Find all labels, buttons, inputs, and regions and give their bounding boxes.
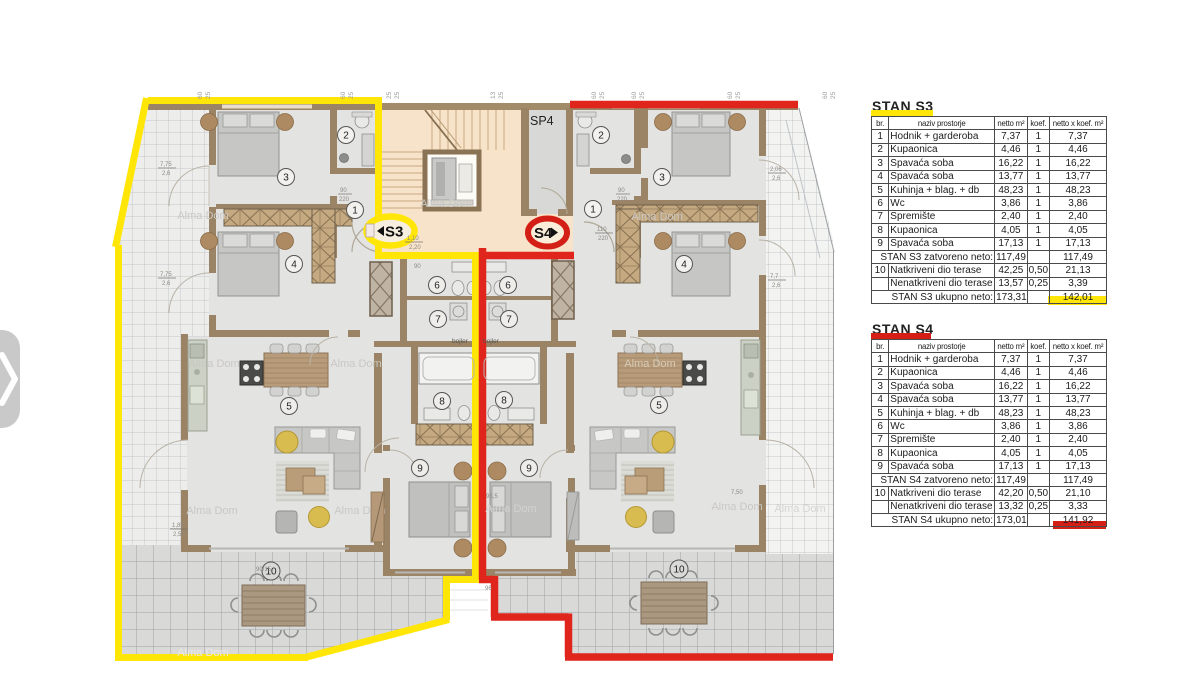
svg-text:SP4: SP4 — [530, 114, 554, 128]
svg-text:25: 25 — [348, 91, 355, 99]
svg-text:Alma Dom: Alma Dom — [177, 647, 228, 659]
svg-text:25: 25 — [735, 91, 742, 99]
svg-text:Alma Dom: Alma Dom — [485, 503, 536, 515]
svg-text:Alma Dom: Alma Dom — [774, 503, 825, 515]
svg-text:2: 2 — [598, 131, 604, 142]
svg-text:Alma Dom: Alma Dom — [330, 358, 381, 370]
svg-text:7: 7 — [435, 315, 441, 326]
svg-text:25: 25 — [394, 91, 401, 99]
svg-text:220: 220 — [339, 197, 350, 203]
svg-text:9: 9 — [526, 464, 532, 475]
svg-text:1: 1 — [590, 205, 596, 216]
svg-text:3: 3 — [659, 173, 665, 184]
svg-text:10: 10 — [673, 565, 685, 576]
svg-text:S3: S3 — [385, 224, 403, 241]
svg-text:9: 9 — [417, 464, 423, 475]
svg-text:220: 220 — [617, 197, 628, 203]
svg-text:25: 25 — [830, 91, 837, 99]
svg-text:4: 4 — [681, 260, 687, 271]
svg-text:Alma Dom: Alma Dom — [186, 505, 237, 517]
svg-text:Alma Dom: Alma Dom — [624, 358, 675, 370]
svg-text:7,75: 7,75 — [160, 162, 172, 168]
svg-text:5: 5 — [656, 401, 662, 412]
svg-text:2,50: 2,50 — [173, 532, 185, 538]
svg-text:25: 25 — [639, 91, 646, 99]
svg-text:2: 2 — [343, 131, 349, 142]
svg-text:60: 60 — [340, 91, 347, 99]
svg-text:S4: S4 — [534, 225, 553, 242]
svg-text:25: 25 — [599, 91, 606, 99]
svg-text:60: 60 — [631, 91, 638, 99]
svg-text:60: 60 — [197, 91, 204, 99]
svg-text:60: 60 — [727, 91, 734, 99]
svg-text:25: 25 — [386, 91, 393, 99]
svg-text:60: 60 — [591, 91, 598, 99]
svg-text:3: 3 — [283, 173, 289, 184]
svg-text:13: 13 — [490, 91, 497, 99]
svg-text:1: 1 — [352, 206, 358, 217]
svg-text:8: 8 — [439, 397, 445, 408]
svg-text:25: 25 — [205, 91, 212, 99]
svg-text:110: 110 — [597, 227, 607, 233]
svg-text:Alma Dom: Alma Dom — [711, 501, 762, 513]
svg-text:2,6: 2,6 — [162, 281, 171, 287]
svg-text:6: 6 — [505, 281, 511, 292]
svg-text:Alma Dom: Alma Dom — [631, 211, 682, 223]
svg-text:2,6: 2,6 — [772, 283, 781, 289]
svg-text:7: 7 — [506, 315, 512, 326]
svg-text:4: 4 — [291, 260, 297, 271]
svg-text:7,75: 7,75 — [160, 272, 172, 278]
svg-text:7,50: 7,50 — [731, 490, 743, 496]
svg-text:1,10: 1,10 — [407, 236, 419, 242]
svg-text:2,06: 2,06 — [770, 167, 782, 173]
svg-text:2,6: 2,6 — [772, 176, 781, 182]
svg-text:8: 8 — [501, 396, 507, 407]
svg-text:1,85: 1,85 — [172, 523, 184, 529]
svg-text:2,6: 2,6 — [162, 171, 171, 177]
svg-text:Alma Dom: Alma Dom — [188, 358, 239, 370]
svg-text:90/15: 90/15 — [256, 567, 272, 573]
svg-text:6: 6 — [434, 281, 440, 292]
svg-text:7,7: 7,7 — [770, 274, 779, 280]
svg-text:Alma Dom: Alma Dom — [177, 210, 228, 222]
svg-text:2,20: 2,20 — [409, 245, 421, 251]
svg-text:25: 25 — [498, 91, 505, 99]
svg-text:60: 60 — [822, 91, 829, 99]
svg-text:90: 90 — [414, 264, 421, 270]
svg-text:96: 96 — [485, 586, 492, 592]
svg-text:90: 90 — [618, 188, 625, 194]
svg-text:90: 90 — [340, 188, 347, 194]
svg-text:bojler: bojler — [483, 338, 500, 345]
svg-text:Alma Dom: Alma Dom — [420, 198, 471, 210]
svg-text:bojler: bojler — [452, 338, 469, 345]
svg-text:220: 220 — [598, 236, 609, 242]
svg-text:5: 5 — [286, 402, 292, 413]
svg-text:98,5: 98,5 — [486, 494, 498, 500]
